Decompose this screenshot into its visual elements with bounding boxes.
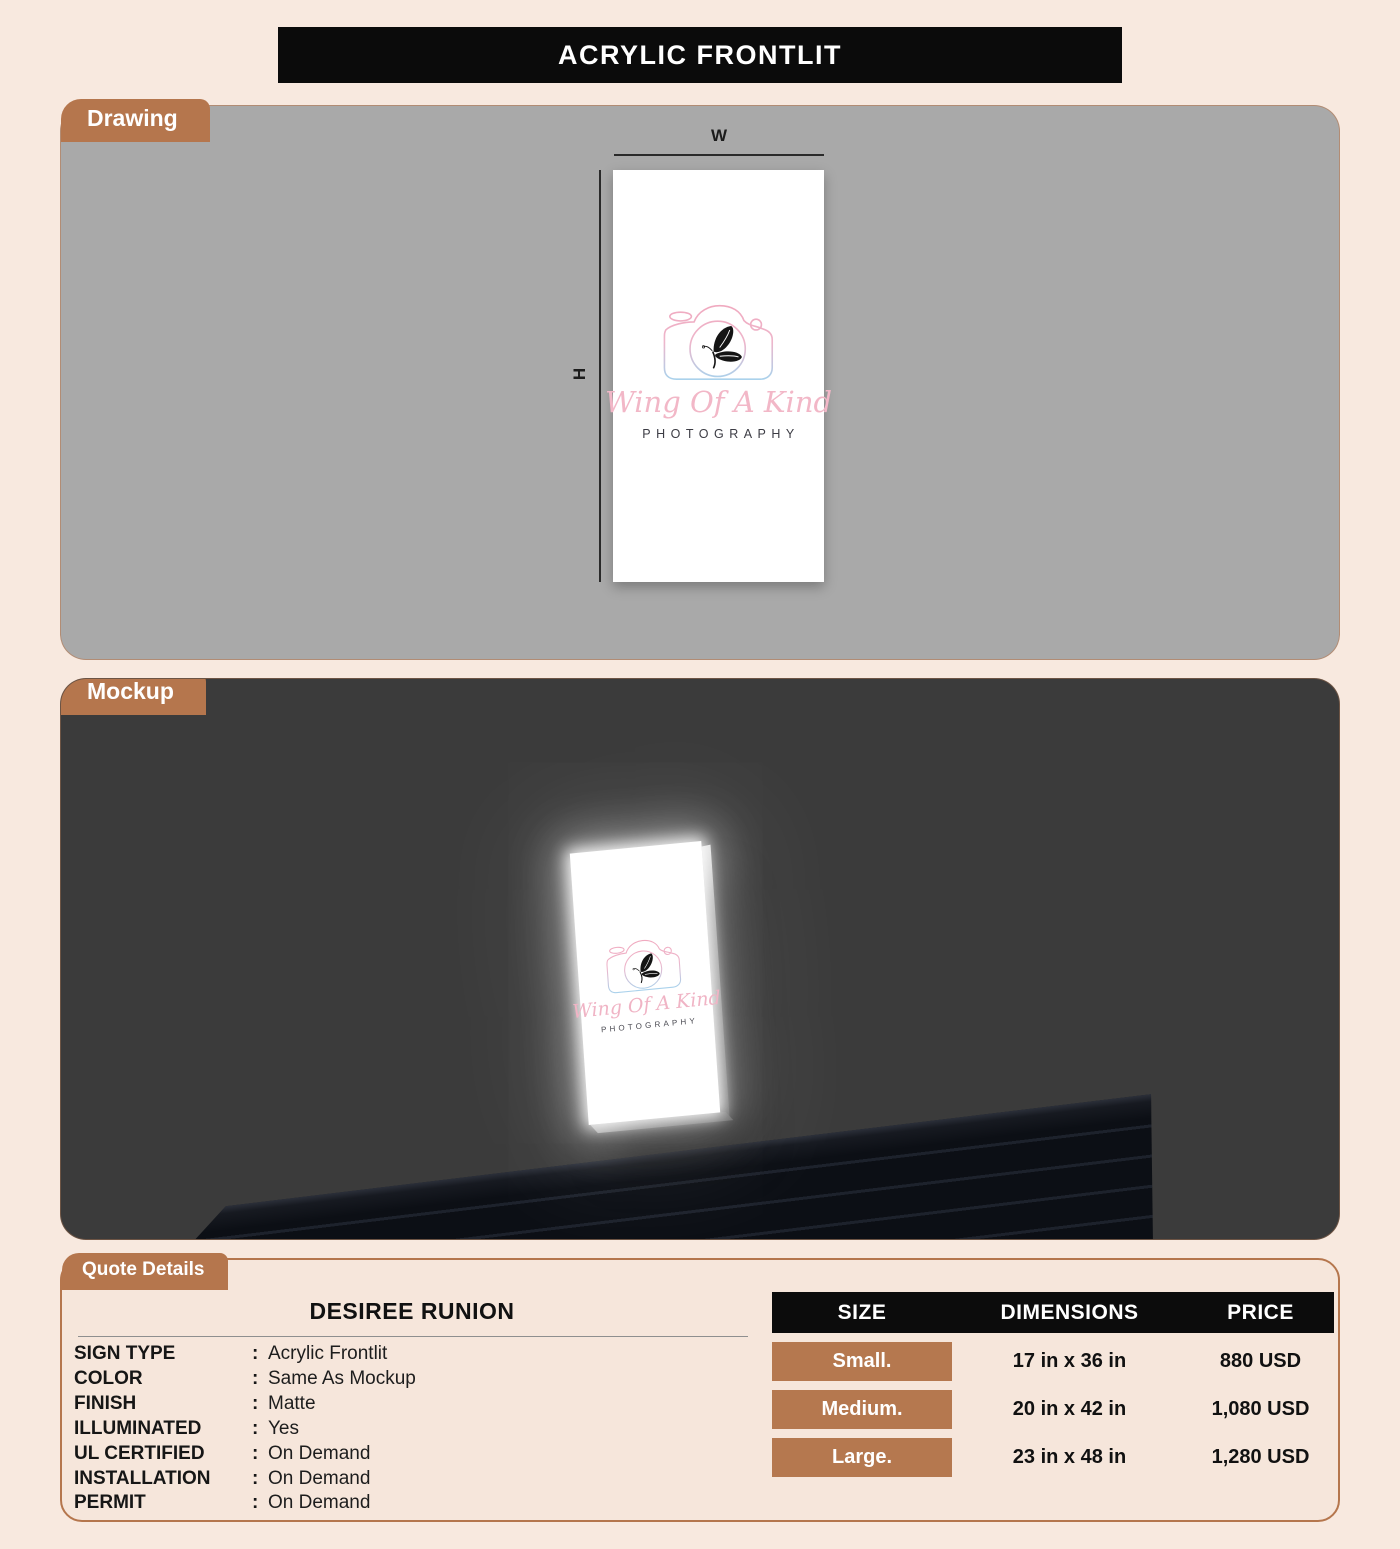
detail-value: Same As Mockup [268, 1367, 750, 1392]
mockup-section-label-text: Mockup [87, 678, 174, 704]
width-dimension-label: W [614, 126, 824, 146]
pricing-table: SIZE DIMENSIONS PRICE Small. 17 in x 36 … [772, 1292, 1334, 1477]
size-badge: Medium. [772, 1390, 952, 1429]
detail-colon: : [252, 1417, 268, 1442]
quote-details-section-label-text: Quote Details [82, 1259, 204, 1280]
detail-value: Acrylic Frontlit [268, 1342, 750, 1367]
quote-sheet-page: ACRYLIC FRONTLIT Drawing W H [0, 0, 1400, 1549]
pricing-row-small: Small. 17 in x 36 in 880 USD [772, 1342, 1334, 1381]
drawing-section-label-text: Drawing [87, 105, 178, 131]
drawing-section-label: Drawing [61, 99, 210, 142]
detail-value: On Demand [268, 1467, 750, 1492]
header-dimensions: DIMENSIONS [952, 1301, 1187, 1325]
butterfly-icon [632, 953, 660, 984]
detail-label: COLOR [74, 1367, 252, 1392]
price-value: 880 USD [1187, 1350, 1334, 1373]
brand-logo: Wing Of A Kind PHOTOGRAPHY [568, 929, 723, 1036]
detail-colon: : [252, 1392, 268, 1417]
header-size: SIZE [772, 1301, 952, 1325]
detail-row-color: COLOR : Same As Mockup [74, 1367, 750, 1392]
detail-colon: : [252, 1467, 268, 1492]
brand-logo: Wing Of A Kind PHOTOGRAPHY [605, 299, 832, 441]
width-dimension-line [614, 154, 824, 156]
sign-drawing-face: Wing Of A Kind PHOTOGRAPHY [613, 170, 824, 582]
camera-butterfly-logo-icon [599, 932, 689, 996]
detail-colon: : [252, 1342, 268, 1367]
dimensions-value: 17 in x 36 in [952, 1350, 1187, 1373]
butterfly-icon [702, 326, 742, 368]
camera-butterfly-logo-icon [655, 299, 783, 383]
drawing-panel: Drawing W H [60, 105, 1340, 660]
price-value: 1,280 USD [1187, 1446, 1334, 1469]
title-bar: ACRYLIC FRONTLIT [278, 27, 1122, 83]
detail-label: PERMIT [74, 1491, 252, 1516]
detail-colon: : [252, 1367, 268, 1392]
detail-row-ul-certified: UL CERTIFIED : On Demand [74, 1442, 750, 1467]
customer-name: DESIREE RUNION [74, 1298, 750, 1325]
quote-detail-list: SIGN TYPE : Acrylic Frontlit COLOR : Sam… [74, 1342, 750, 1516]
mockup-sign: Wing Of A Kind PHOTOGRAPHY [570, 841, 720, 1125]
detail-value: Yes [268, 1417, 750, 1442]
detail-colon: : [252, 1491, 268, 1516]
detail-label: FINISH [74, 1392, 252, 1417]
detail-row-permit: PERMIT : On Demand [74, 1491, 750, 1516]
logo-subtext: PHOTOGRAPHY [642, 427, 800, 441]
detail-row-finish: FINISH : Matte [74, 1392, 750, 1417]
price-value: 1,080 USD [1187, 1398, 1334, 1421]
size-badge: Small. [772, 1342, 952, 1381]
logo-script-text: Wing Of A Kind [605, 385, 832, 419]
quote-details-section-label: Quote Details [62, 1253, 228, 1290]
detail-label: ILLUMINATED [74, 1417, 252, 1442]
detail-label: SIGN TYPE [74, 1342, 252, 1367]
pricing-table-header: SIZE DIMENSIONS PRICE [772, 1292, 1334, 1333]
detail-row-sign-type: SIGN TYPE : Acrylic Frontlit [74, 1342, 750, 1367]
dimensions-value: 20 in x 42 in [952, 1398, 1187, 1421]
mockup-panel: Mockup [60, 678, 1340, 1240]
height-dimension-line [599, 170, 601, 582]
mockup-section-label: Mockup [61, 678, 206, 715]
height-dimension-label: H [570, 354, 590, 394]
detail-row-illuminated: ILLUMINATED : Yes [74, 1417, 750, 1442]
detail-value: On Demand [268, 1442, 750, 1467]
page-title: ACRYLIC FRONTLIT [558, 40, 842, 71]
pricing-row-medium: Medium. 20 in x 42 in 1,080 USD [772, 1390, 1334, 1429]
detail-value: Matte [268, 1392, 750, 1417]
detail-value: On Demand [268, 1491, 750, 1516]
header-price: PRICE [1187, 1301, 1334, 1325]
detail-label: INSTALLATION [74, 1467, 252, 1492]
mockup-sign-face: Wing Of A Kind PHOTOGRAPHY [570, 841, 720, 1125]
dimensions-value: 23 in x 48 in [952, 1446, 1187, 1469]
detail-colon: : [252, 1442, 268, 1467]
roof-siding [161, 1076, 1340, 1240]
customer-divider [78, 1336, 748, 1337]
detail-label: UL CERTIFIED [74, 1442, 252, 1467]
quote-details-panel: Quote Details DESIREE RUNION SIGN TYPE :… [60, 1258, 1340, 1522]
pricing-row-large: Large. 23 in x 48 in 1,280 USD [772, 1438, 1334, 1477]
size-badge: Large. [772, 1438, 952, 1477]
detail-row-installation: INSTALLATION : On Demand [74, 1467, 750, 1492]
